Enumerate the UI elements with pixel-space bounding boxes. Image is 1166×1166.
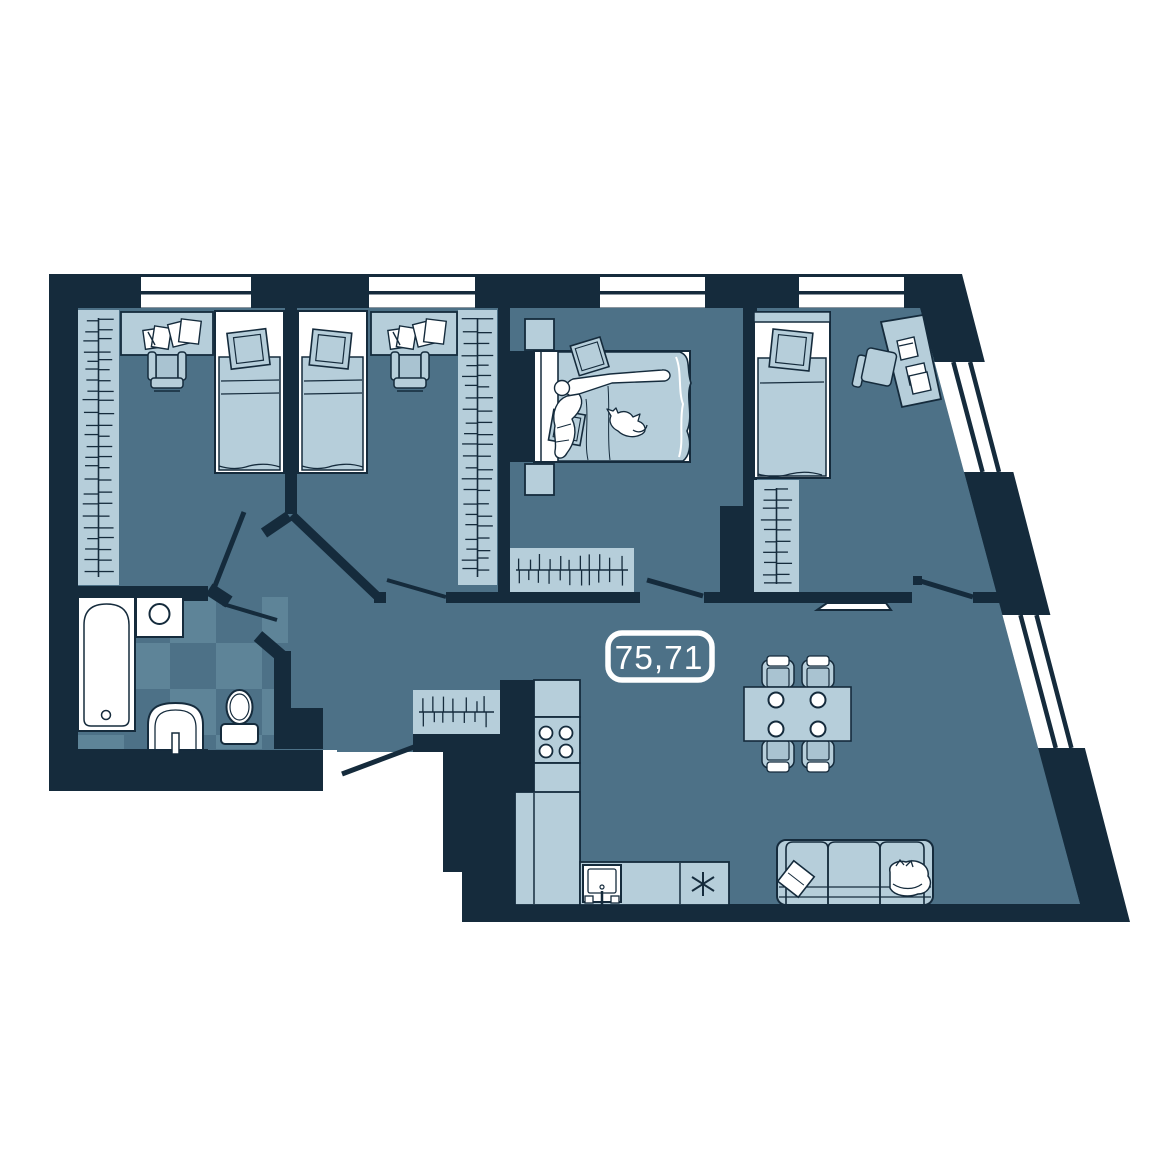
svg-text:75,71: 75,71 — [615, 640, 704, 677]
